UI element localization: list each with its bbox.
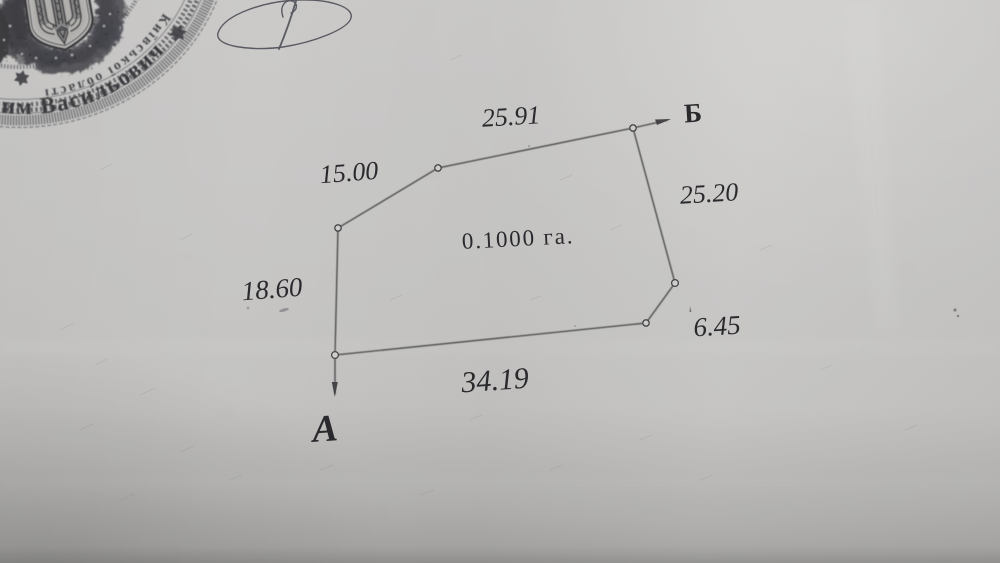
svg-text:34.19: 34.19 — [459, 362, 530, 400]
svg-text:25.91: 25.91 — [481, 100, 541, 133]
svg-text:18.60: 18.60 — [241, 272, 304, 307]
svg-text:15.00: 15.00 — [319, 156, 380, 190]
svg-text:6.45: 6.45 — [693, 310, 742, 343]
svg-text:25.20: 25.20 — [679, 177, 739, 210]
svg-text:А: А — [309, 407, 339, 451]
svg-text:Б: Б — [683, 97, 703, 128]
